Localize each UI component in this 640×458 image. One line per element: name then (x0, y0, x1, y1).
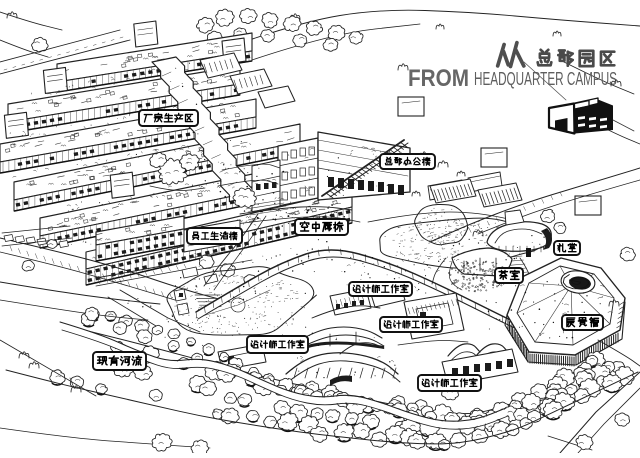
svg-text:FROM: FROM (408, 65, 469, 92)
svg-text:HEADQUARTER CAMPUS: HEADQUARTER CAMPUS (474, 69, 617, 89)
